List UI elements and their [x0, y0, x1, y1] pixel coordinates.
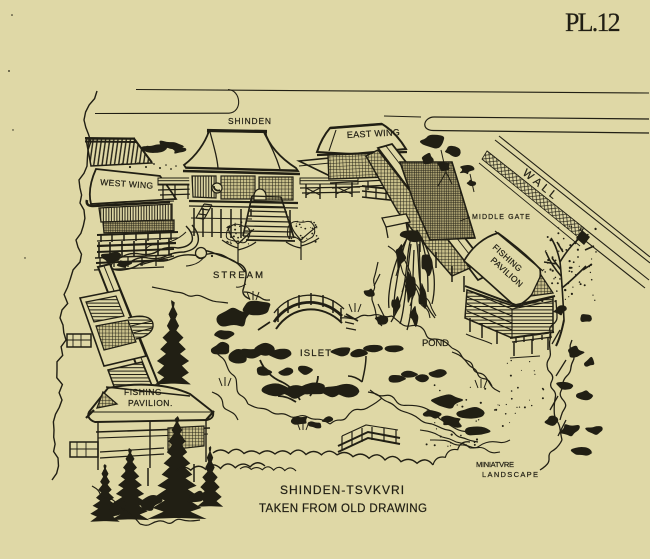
svg-text:FISHING: FISHING	[124, 387, 162, 397]
svg-text:MINIATVRE: MINIATVRE	[476, 460, 514, 469]
svg-text:STREAM: STREAM	[213, 270, 265, 281]
svg-text:PL.12: PL.12	[565, 8, 620, 37]
svg-text:LANDSCAPE: LANDSCAPE	[482, 470, 539, 479]
svg-text:PAVILION.: PAVILION.	[128, 398, 173, 408]
svg-text:TAKEN FROM OLD DRAWING: TAKEN FROM OLD DRAWING	[259, 503, 427, 515]
svg-text:SHINDEN: SHINDEN	[228, 116, 272, 126]
svg-text:MIDDLE GATE: MIDDLE GATE	[472, 214, 531, 221]
svg-text:SHINDEN-TSVKVRI: SHINDEN-TSVKVRI	[280, 483, 405, 497]
svg-text:POND: POND	[422, 338, 449, 349]
svg-text:ISLET: ISLET	[300, 348, 332, 359]
